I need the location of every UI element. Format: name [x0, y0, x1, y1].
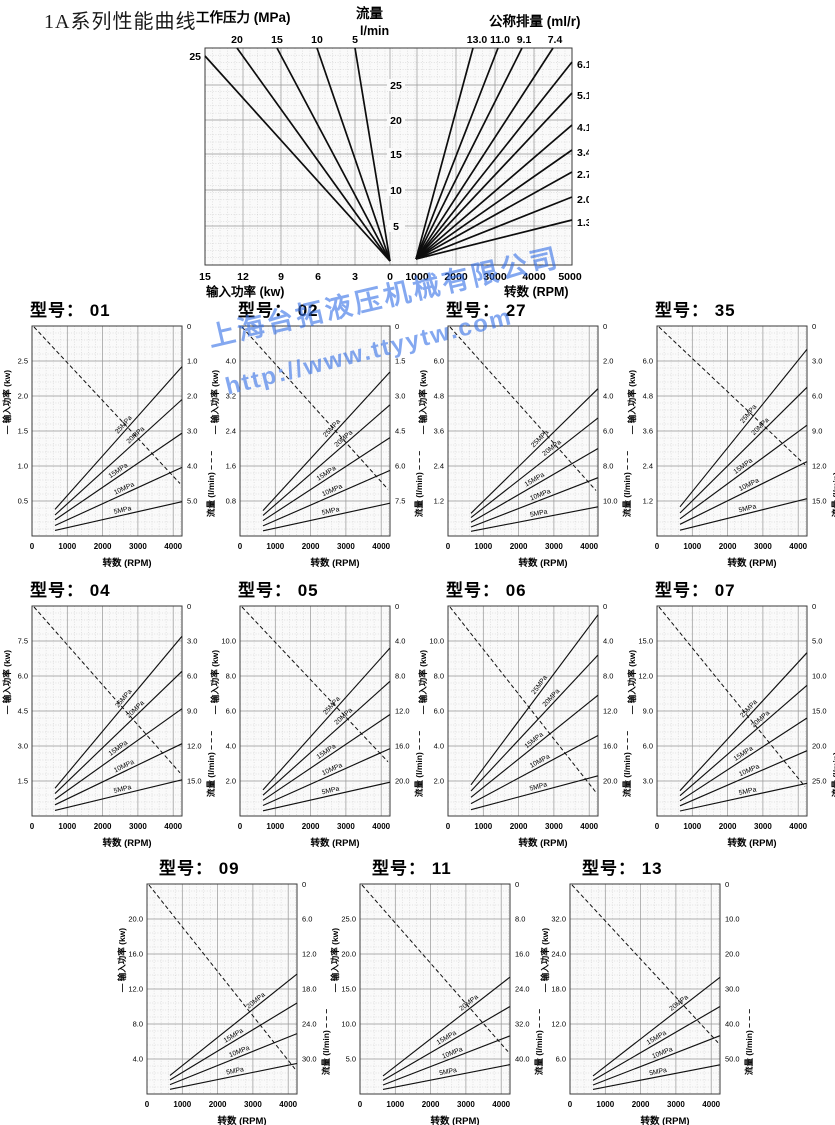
svg-text:2000: 2000: [94, 542, 112, 551]
model-chart-06: 型号： 0625MPa20MPa15MPa10MPa5MPa2.04.06.08…: [416, 576, 640, 852]
chart-plot-svg: 25MPa20MPa15MPa10MPa5MPa1.22.43.64.86.00…: [625, 318, 835, 570]
svg-text:20.0: 20.0: [812, 742, 827, 751]
svg-text:4000: 4000: [372, 542, 390, 551]
svg-text:3.0: 3.0: [643, 777, 653, 786]
svg-text:2.0: 2.0: [577, 194, 589, 206]
svg-text:9.1: 9.1: [517, 34, 532, 46]
svg-text:2000: 2000: [209, 1100, 227, 1109]
model-chart-02: 型号： 0225MPa20MPa15MPa10MPa5MPa0.81.62.43…: [208, 296, 432, 572]
svg-text:1.5: 1.5: [395, 357, 405, 366]
svg-text:6.1: 6.1: [577, 59, 589, 71]
svg-text:4.0: 4.0: [434, 742, 444, 751]
svg-text:流量 (l/min) – – –: 流量 (l/min) – – –: [831, 731, 835, 797]
svg-text:12.0: 12.0: [187, 742, 202, 751]
svg-text:转数 (RPM): 转数 (RPM): [217, 1115, 266, 1125]
svg-text:1.0: 1.0: [18, 462, 28, 471]
svg-text:0: 0: [395, 602, 399, 611]
svg-text:12.0: 12.0: [638, 672, 653, 681]
svg-text:1000: 1000: [58, 542, 76, 551]
chart-plot-svg: 25MPa20MPa15MPa10MPa5MPa2.04.06.08.010.0…: [416, 598, 638, 850]
svg-text:转数 (RPM): 转数 (RPM): [102, 557, 151, 569]
svg-text:4.8: 4.8: [643, 392, 653, 401]
svg-text:9.0: 9.0: [187, 707, 197, 716]
svg-text:3000: 3000: [129, 542, 147, 551]
svg-text:3.6: 3.6: [643, 427, 653, 436]
svg-text:3: 3: [352, 271, 358, 283]
svg-text:18.0: 18.0: [551, 985, 566, 994]
svg-text:6.0: 6.0: [434, 357, 444, 366]
svg-text:0.5: 0.5: [18, 497, 28, 506]
model-chart-13: 型号： 1320MPa15MPa10MPa5MPa6.012.018.024.0…: [538, 854, 762, 1125]
model-chart-07: 型号： 0725MPa20MPa15MPa10MPa5MPa3.06.09.01…: [625, 576, 835, 852]
main-chart-plot: 20151052513.011.09.17.46.15.14.13.42.72.…: [189, 32, 589, 288]
svg-text:3000: 3000: [337, 822, 355, 831]
svg-text:0: 0: [603, 322, 607, 331]
svg-text:转数 (RPM): 转数 (RPM): [310, 837, 359, 849]
svg-text:4.8: 4.8: [434, 392, 444, 401]
svg-text:— 输入功率 (kw): — 输入功率 (kw): [540, 928, 550, 992]
model-chart-27: 型号： 2725MPa20MPa15MPa10MPa5MPa1.22.43.64…: [416, 296, 640, 572]
chart-plot-svg: 25MPa20MPa15MPa10MPa5MPa0.51.01.52.02.50…: [0, 318, 222, 570]
chart-plot-svg: 20MPa15MPa10MPa5MPa6.012.018.024.032.001…: [538, 876, 760, 1125]
svg-text:6.0: 6.0: [226, 707, 236, 716]
chart-plot-svg: 25MPa20MPa15MPa10MPa5MPa1.53.04.56.07.50…: [0, 598, 222, 850]
svg-text:25.0: 25.0: [812, 777, 827, 786]
svg-text:转数 (RPM): 转数 (RPM): [640, 1115, 689, 1125]
svg-text:6.0: 6.0: [603, 427, 613, 436]
svg-text:— 输入功率 (kw): — 输入功率 (kw): [2, 650, 12, 714]
svg-text:5.1: 5.1: [577, 90, 589, 102]
svg-text:— 输入功率 (kw): — 输入功率 (kw): [418, 650, 428, 714]
svg-text:转数 (RPM): 转数 (RPM): [727, 837, 776, 849]
svg-text:15.0: 15.0: [341, 985, 356, 994]
svg-text:5.0: 5.0: [346, 1055, 356, 1064]
svg-text:5: 5: [352, 34, 358, 46]
chart-plot-svg: 20MPa15MPa10MPa5MPa5.010.015.020.025.008…: [328, 876, 550, 1125]
svg-text:1000: 1000: [405, 271, 429, 283]
svg-text:1.3: 1.3: [577, 217, 589, 229]
svg-text:20.0: 20.0: [395, 777, 410, 786]
svg-text:4000: 4000: [580, 542, 598, 551]
svg-text:4000: 4000: [372, 822, 390, 831]
svg-text:6.0: 6.0: [187, 672, 197, 681]
svg-text:10.0: 10.0: [725, 915, 740, 924]
svg-text:11.0: 11.0: [490, 34, 510, 46]
svg-text:流量 (l/min) – – –: 流量 (l/min) – – –: [831, 451, 835, 517]
model-chart-04: 型号： 0425MPa20MPa15MPa10MPa5MPa1.53.04.56…: [0, 576, 224, 852]
svg-text:0: 0: [655, 542, 660, 551]
svg-text:6.0: 6.0: [643, 742, 653, 751]
pressure-axis-title: 工作压力 (MPa): [196, 6, 291, 26]
svg-text:0: 0: [515, 880, 519, 889]
svg-text:10.0: 10.0: [221, 637, 236, 646]
svg-text:8.0: 8.0: [603, 672, 613, 681]
svg-text:8.0: 8.0: [226, 672, 236, 681]
flow-axis-title: 流量: [356, 2, 383, 22]
svg-text:0: 0: [655, 822, 660, 831]
svg-text:7.4: 7.4: [548, 34, 563, 46]
svg-text:15.0: 15.0: [638, 637, 653, 646]
svg-text:12.0: 12.0: [395, 707, 410, 716]
svg-text:2.7: 2.7: [577, 169, 589, 181]
svg-text:18.0: 18.0: [302, 985, 317, 994]
svg-text:9.0: 9.0: [643, 707, 653, 716]
svg-text:1.0: 1.0: [187, 357, 197, 366]
svg-text:20.0: 20.0: [341, 950, 356, 959]
svg-text:3000: 3000: [244, 1100, 262, 1109]
svg-text:2.4: 2.4: [434, 462, 444, 471]
svg-text:0: 0: [568, 1100, 573, 1109]
svg-text:2000: 2000: [444, 271, 468, 283]
svg-text:15.0: 15.0: [812, 707, 827, 716]
svg-text:20.0: 20.0: [128, 915, 143, 924]
svg-text:3.0: 3.0: [187, 637, 197, 646]
svg-text:13.0: 13.0: [467, 34, 488, 46]
svg-text:3000: 3000: [667, 1100, 685, 1109]
svg-text:0: 0: [387, 271, 393, 283]
svg-text:0: 0: [446, 822, 451, 831]
svg-text:1000: 1000: [173, 1100, 191, 1109]
svg-text:0: 0: [30, 542, 35, 551]
svg-text:24.0: 24.0: [551, 950, 566, 959]
svg-text:15: 15: [390, 149, 402, 161]
svg-text:4.5: 4.5: [395, 427, 405, 436]
svg-text:2.5: 2.5: [18, 357, 28, 366]
svg-text:1000: 1000: [683, 542, 701, 551]
svg-text:— 输入功率 (kw): — 输入功率 (kw): [2, 370, 12, 434]
svg-text:0: 0: [358, 1100, 363, 1109]
svg-text:15.0: 15.0: [812, 497, 827, 506]
svg-text:6.0: 6.0: [434, 707, 444, 716]
svg-text:8.0: 8.0: [434, 672, 444, 681]
svg-text:2.4: 2.4: [643, 462, 653, 471]
svg-text:2.0: 2.0: [18, 392, 28, 401]
svg-text:30.0: 30.0: [302, 1055, 317, 1064]
svg-text:32.0: 32.0: [551, 915, 566, 924]
svg-text:1000: 1000: [266, 542, 284, 551]
svg-text:10.0: 10.0: [341, 1020, 356, 1029]
svg-text:3000: 3000: [129, 822, 147, 831]
svg-text:2000: 2000: [510, 822, 528, 831]
svg-text:3.6: 3.6: [434, 427, 444, 436]
svg-text:1.2: 1.2: [643, 497, 653, 506]
svg-text:20: 20: [231, 34, 243, 46]
svg-text:16.0: 16.0: [603, 742, 618, 751]
svg-text:— 输入功率 (kw): — 输入功率 (kw): [330, 928, 340, 992]
svg-text:0: 0: [446, 542, 451, 551]
svg-text:5.0: 5.0: [187, 497, 197, 506]
svg-text:9.0: 9.0: [812, 427, 822, 436]
model-chart-35: 型号： 3525MPa20MPa15MPa10MPa5MPa1.22.43.64…: [625, 296, 835, 572]
svg-text:6: 6: [315, 271, 321, 283]
svg-text:0: 0: [145, 1100, 150, 1109]
svg-text:2.0: 2.0: [603, 357, 613, 366]
model-chart-09: 型号： 0920MPa15MPa10MPa5MPa4.08.012.016.02…: [115, 854, 339, 1125]
svg-text:2000: 2000: [632, 1100, 650, 1109]
svg-text:2000: 2000: [302, 542, 320, 551]
svg-text:2000: 2000: [302, 822, 320, 831]
svg-text:0: 0: [187, 602, 191, 611]
svg-text:5: 5: [393, 221, 399, 233]
svg-text:16.0: 16.0: [128, 950, 143, 959]
svg-text:4.1: 4.1: [577, 122, 589, 134]
svg-text:10: 10: [311, 34, 323, 46]
svg-text:4000: 4000: [164, 822, 182, 831]
svg-text:0: 0: [302, 880, 306, 889]
displacement-axis-title: 公称排量 (ml/r): [489, 10, 581, 30]
svg-text:3.0: 3.0: [187, 427, 197, 436]
chart-plot-svg: 25MPa20MPa15MPa10MPa5MPa3.06.09.012.015.…: [625, 598, 835, 850]
svg-text:0: 0: [395, 322, 399, 331]
svg-text:6.0: 6.0: [18, 672, 28, 681]
svg-text:4000: 4000: [789, 542, 807, 551]
svg-text:5.0: 5.0: [812, 637, 822, 646]
svg-text:10.0: 10.0: [812, 672, 827, 681]
svg-text:0: 0: [812, 322, 816, 331]
svg-text:2000: 2000: [422, 1100, 440, 1109]
svg-text:0: 0: [187, 322, 191, 331]
svg-text:6.0: 6.0: [556, 1055, 566, 1064]
svg-text:7.5: 7.5: [395, 497, 405, 506]
svg-text:— 输入功率 (kw): — 输入功率 (kw): [117, 928, 127, 992]
svg-text:4.0: 4.0: [395, 637, 405, 646]
svg-text:16.0: 16.0: [395, 742, 410, 751]
svg-text:1.5: 1.5: [18, 777, 28, 786]
svg-text:8.0: 8.0: [515, 915, 525, 924]
svg-text:7.5: 7.5: [18, 637, 28, 646]
svg-text:0: 0: [30, 822, 35, 831]
svg-text:4000: 4000: [492, 1100, 510, 1109]
page-title: 1A系列性能曲线: [44, 5, 196, 34]
svg-text:8.0: 8.0: [603, 462, 613, 471]
svg-text:3000: 3000: [337, 542, 355, 551]
svg-text:12.0: 12.0: [603, 707, 618, 716]
svg-text:3.4: 3.4: [577, 147, 589, 159]
svg-text:1.2: 1.2: [434, 497, 444, 506]
svg-text:0: 0: [238, 542, 243, 551]
svg-text:4.5: 4.5: [18, 707, 28, 716]
svg-text:2000: 2000: [719, 542, 737, 551]
svg-text:50.0: 50.0: [725, 1055, 740, 1064]
svg-text:12.0: 12.0: [551, 1020, 566, 1029]
model-chart-05: 型号： 0525MPa20MPa15MPa10MPa5MPa2.04.06.08…: [208, 576, 432, 852]
svg-text:— 输入功率 (kw): — 输入功率 (kw): [627, 370, 637, 434]
svg-text:3.0: 3.0: [812, 357, 822, 366]
chart-plot-svg: 20MPa15MPa10MPa5MPa4.08.012.016.020.006.…: [115, 876, 337, 1125]
svg-text:3.2: 3.2: [226, 392, 236, 401]
svg-text:15: 15: [271, 34, 283, 46]
svg-text:40.0: 40.0: [725, 1020, 740, 1029]
svg-text:转数 (RPM): 转数 (RPM): [310, 557, 359, 569]
svg-text:2.0: 2.0: [187, 392, 197, 401]
svg-text:3000: 3000: [754, 822, 772, 831]
svg-text:— 输入功率 (kw): — 输入功率 (kw): [627, 650, 637, 714]
svg-text:1000: 1000: [683, 822, 701, 831]
svg-text:1000: 1000: [474, 542, 492, 551]
svg-text:2.0: 2.0: [226, 777, 236, 786]
svg-text:2000: 2000: [94, 822, 112, 831]
svg-text:0: 0: [603, 602, 607, 611]
svg-text:4.0: 4.0: [187, 462, 197, 471]
svg-text:1000: 1000: [386, 1100, 404, 1109]
svg-text:20.0: 20.0: [603, 777, 618, 786]
chart-plot-svg: 25MPa20MPa15MPa10MPa5MPa2.04.06.08.010.0…: [208, 598, 430, 850]
svg-text:32.0: 32.0: [515, 1020, 530, 1029]
svg-text:0.8: 0.8: [226, 497, 236, 506]
svg-text:6.0: 6.0: [643, 357, 653, 366]
svg-text:25: 25: [390, 80, 402, 92]
svg-text:— 输入功率 (kw): — 输入功率 (kw): [418, 370, 428, 434]
svg-text:4000: 4000: [789, 822, 807, 831]
svg-text:16.0: 16.0: [515, 950, 530, 959]
svg-text:2.4: 2.4: [226, 427, 236, 436]
svg-text:4.0: 4.0: [603, 392, 613, 401]
chart-plot-svg: 25MPa20MPa15MPa10MPa5MPa1.22.43.64.86.00…: [416, 318, 638, 570]
svg-text:3000: 3000: [545, 542, 563, 551]
chart-plot-svg: 25MPa20MPa15MPa10MPa5MPa0.81.62.43.24.00…: [208, 318, 430, 570]
svg-text:24.0: 24.0: [302, 1020, 317, 1029]
svg-text:转数 (RPM): 转数 (RPM): [102, 837, 151, 849]
svg-text:1000: 1000: [474, 822, 492, 831]
svg-text:4.0: 4.0: [226, 357, 236, 366]
svg-text:6.0: 6.0: [812, 392, 822, 401]
svg-text:3000: 3000: [545, 822, 563, 831]
svg-text:2000: 2000: [719, 822, 737, 831]
model-chart-01: 型号： 0125MPa20MPa15MPa10MPa5MPa0.51.01.52…: [0, 296, 224, 572]
svg-text:4.0: 4.0: [133, 1055, 143, 1064]
svg-text:25: 25: [189, 51, 201, 63]
svg-text:0: 0: [812, 602, 816, 611]
svg-text:2.0: 2.0: [434, 777, 444, 786]
svg-text:转数 (RPM): 转数 (RPM): [518, 837, 567, 849]
svg-text:— 输入功率 (kw): — 输入功率 (kw): [210, 650, 220, 714]
svg-text:30.0: 30.0: [725, 985, 740, 994]
svg-text:10.0: 10.0: [603, 497, 618, 506]
svg-text:12.0: 12.0: [302, 950, 317, 959]
svg-text:25.0: 25.0: [341, 915, 356, 924]
svg-text:8.0: 8.0: [133, 1020, 143, 1029]
svg-text:— 输入功率 (kw): — 输入功率 (kw): [210, 370, 220, 434]
svg-text:24.0: 24.0: [515, 985, 530, 994]
svg-text:20.0: 20.0: [725, 950, 740, 959]
svg-text:6.0: 6.0: [302, 915, 312, 924]
svg-text:3.0: 3.0: [18, 742, 28, 751]
svg-text:4000: 4000: [279, 1100, 297, 1109]
model-chart-11: 型号： 1120MPa15MPa10MPa5MPa5.010.015.020.0…: [328, 854, 552, 1125]
svg-text:12.0: 12.0: [812, 462, 827, 471]
svg-text:4000: 4000: [164, 542, 182, 551]
svg-text:转数 (RPM): 转数 (RPM): [727, 557, 776, 569]
svg-text:8.0: 8.0: [395, 672, 405, 681]
svg-text:3000: 3000: [457, 1100, 475, 1109]
svg-text:3.0: 3.0: [395, 392, 405, 401]
svg-text:0: 0: [725, 880, 729, 889]
svg-text:12.0: 12.0: [128, 985, 143, 994]
svg-text:40.0: 40.0: [515, 1055, 530, 1064]
svg-text:1.5: 1.5: [18, 427, 28, 436]
svg-text:3000: 3000: [754, 542, 772, 551]
svg-text:流量 (l/min) – – –: 流量 (l/min) – – –: [744, 1009, 754, 1075]
svg-text:转数 (RPM): 转数 (RPM): [518, 557, 567, 569]
svg-text:6.0: 6.0: [395, 462, 405, 471]
svg-text:10: 10: [390, 185, 402, 197]
svg-text:4000: 4000: [702, 1100, 720, 1109]
svg-text:1.6: 1.6: [226, 462, 236, 471]
svg-text:1000: 1000: [266, 822, 284, 831]
svg-text:1000: 1000: [58, 822, 76, 831]
svg-text:转数 (RPM): 转数 (RPM): [430, 1115, 479, 1125]
svg-text:2000: 2000: [510, 542, 528, 551]
page: 1A系列性能曲线 工作压力 (MPa) 流量 l/min 公称排量 (ml/r)…: [0, 0, 835, 1125]
svg-text:4.0: 4.0: [603, 637, 613, 646]
svg-text:4.0: 4.0: [226, 742, 236, 751]
svg-text:4000: 4000: [580, 822, 598, 831]
svg-text:1000: 1000: [596, 1100, 614, 1109]
svg-text:0: 0: [238, 822, 243, 831]
svg-text:10.0: 10.0: [429, 637, 444, 646]
svg-text:20: 20: [390, 115, 402, 127]
svg-text:15.0: 15.0: [187, 777, 202, 786]
